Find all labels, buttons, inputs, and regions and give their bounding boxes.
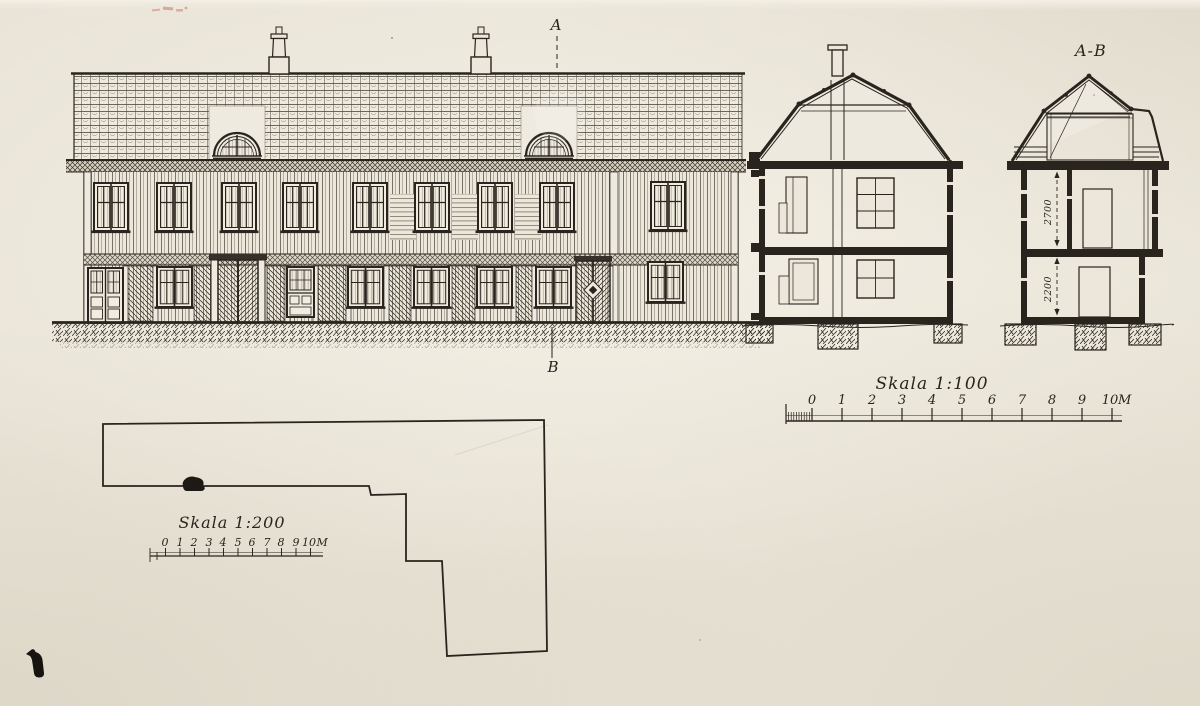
upper-window-2: [155, 183, 194, 233]
ground-window-3: [412, 267, 452, 309]
tick-label: 9: [1078, 393, 1086, 408]
scale-label: Skala 1:200: [178, 513, 285, 532]
archive-photo-of-architectural-drawing: A B A-B: [0, 0, 1200, 706]
section-line-A: A: [549, 16, 562, 72]
upper-window-7: [476, 183, 515, 233]
dormer-lunette-left: [209, 106, 265, 160]
upper-window-3: [220, 183, 259, 233]
foundation-pier: [818, 324, 858, 349]
tick-label: 6: [249, 536, 256, 549]
ground-window-4: [475, 267, 515, 309]
tick-label: 0: [808, 393, 816, 408]
tick-label: 4: [219, 536, 227, 549]
gambrel-roof-profile: [757, 75, 949, 160]
tick-label: 2: [190, 536, 198, 549]
tick-label: 8: [1048, 393, 1056, 408]
mid-floor-slab: [759, 247, 953, 255]
ground-window-2: [346, 267, 386, 309]
tick-label: 5: [235, 536, 242, 549]
corner-board-right: [731, 172, 738, 322]
gambrel-roof-profile: [1012, 76, 1131, 161]
upper-window-8: [538, 183, 577, 233]
section-view-label: A-B: [1073, 41, 1107, 60]
scale-unit: M: [316, 536, 329, 549]
scale-bar-1-200: Skala 1:200 0 1 2 3 4 5 6 7 8 9 10 M: [150, 513, 329, 562]
tick-label: 7: [264, 536, 271, 549]
carriage-door-chevron: [209, 254, 267, 323]
dimension-value: 2200: [1043, 276, 1054, 303]
attic-floor-slab: [1007, 161, 1169, 170]
section-upper-door: [1083, 189, 1112, 248]
red-smudge: [152, 7, 187, 12]
ground-rubble-band: [52, 323, 770, 349]
tick-label: 0: [162, 536, 169, 549]
chimney-left: [269, 27, 289, 74]
ground-window-right-wing: [646, 262, 686, 304]
tick-label: 3: [206, 536, 213, 549]
scale-label: Skala 1:100: [875, 374, 988, 394]
section-chimney-cap: [828, 45, 847, 50]
ground-window-5: [534, 267, 574, 309]
upper-window-right-wing: [649, 182, 688, 232]
dust-speck: [699, 639, 701, 641]
cross-section-right: A-B 2700 2200: [1000, 41, 1174, 350]
section-marker-A: A: [549, 16, 562, 34]
door-chevron-diamond: [574, 256, 612, 323]
upper-window-1: [92, 183, 131, 233]
tick-label: 2: [867, 393, 876, 408]
tick-label: 3: [898, 393, 906, 408]
attic-floor-slab: [747, 161, 963, 169]
dimension-upper-storey: 2700: [1043, 172, 1060, 247]
ground-floor-lintel-band: [84, 254, 738, 265]
tick-label: 5: [958, 393, 966, 408]
tick-label: 9: [293, 536, 300, 549]
upper-window-6: [413, 183, 452, 233]
scale-unit: M: [1117, 393, 1132, 408]
facade-elevation: A B: [52, 16, 770, 376]
dust-speck: [391, 37, 393, 39]
ink-stamp-figure: [26, 649, 44, 677]
interior-wall: [1067, 170, 1072, 249]
section-lower-door: [1079, 267, 1110, 317]
entrance-door-glazed-double: [88, 268, 123, 323]
eaves-cornice: [66, 160, 746, 172]
tick-label: 10: [302, 536, 316, 549]
paper-stain: [534, 89, 586, 141]
dimension-lower-storey: 2200: [1043, 258, 1060, 316]
foundation-pier: [1075, 324, 1106, 350]
tick-label: 8: [278, 536, 285, 549]
ground-floor-slab: [759, 317, 953, 324]
ground-window-1: [155, 267, 195, 309]
ground-floor-slab: [1021, 317, 1145, 324]
dimension-value: 2700: [1043, 199, 1054, 226]
foundation-pier: [1005, 324, 1036, 345]
foundation-pier: [746, 324, 773, 343]
section-chimney-stack: [832, 50, 843, 76]
upper-window-4: [281, 183, 320, 233]
upper-window-5: [351, 183, 390, 233]
tick-label: 1: [838, 393, 846, 408]
chimney-right: [471, 27, 491, 74]
ink-blot: [183, 477, 205, 491]
tick-label: 4: [927, 393, 936, 408]
tick-label: 1: [177, 536, 184, 549]
tick-label: 10: [1102, 393, 1119, 408]
architectural-drawing: A B A-B: [0, 0, 1200, 706]
scale-bar-1-100: Skala 1:100 0 1 2 3 4 5 6 7 8 9 10 M: [786, 374, 1132, 424]
foundation-pier: [1129, 324, 1161, 345]
entrance-door-glazed: [287, 267, 314, 317]
tick-label: 7: [1018, 393, 1027, 408]
section-upper-door: [786, 177, 807, 233]
dust-speck: [1093, 94, 1095, 96]
section-marker-B: B: [546, 358, 558, 376]
mid-floor-slab: [1021, 249, 1163, 257]
tiled-roof: [71, 74, 745, 162]
cross-section-left: [742, 45, 968, 349]
foundation-pier: [934, 324, 962, 343]
tick-label: 6: [988, 393, 996, 408]
